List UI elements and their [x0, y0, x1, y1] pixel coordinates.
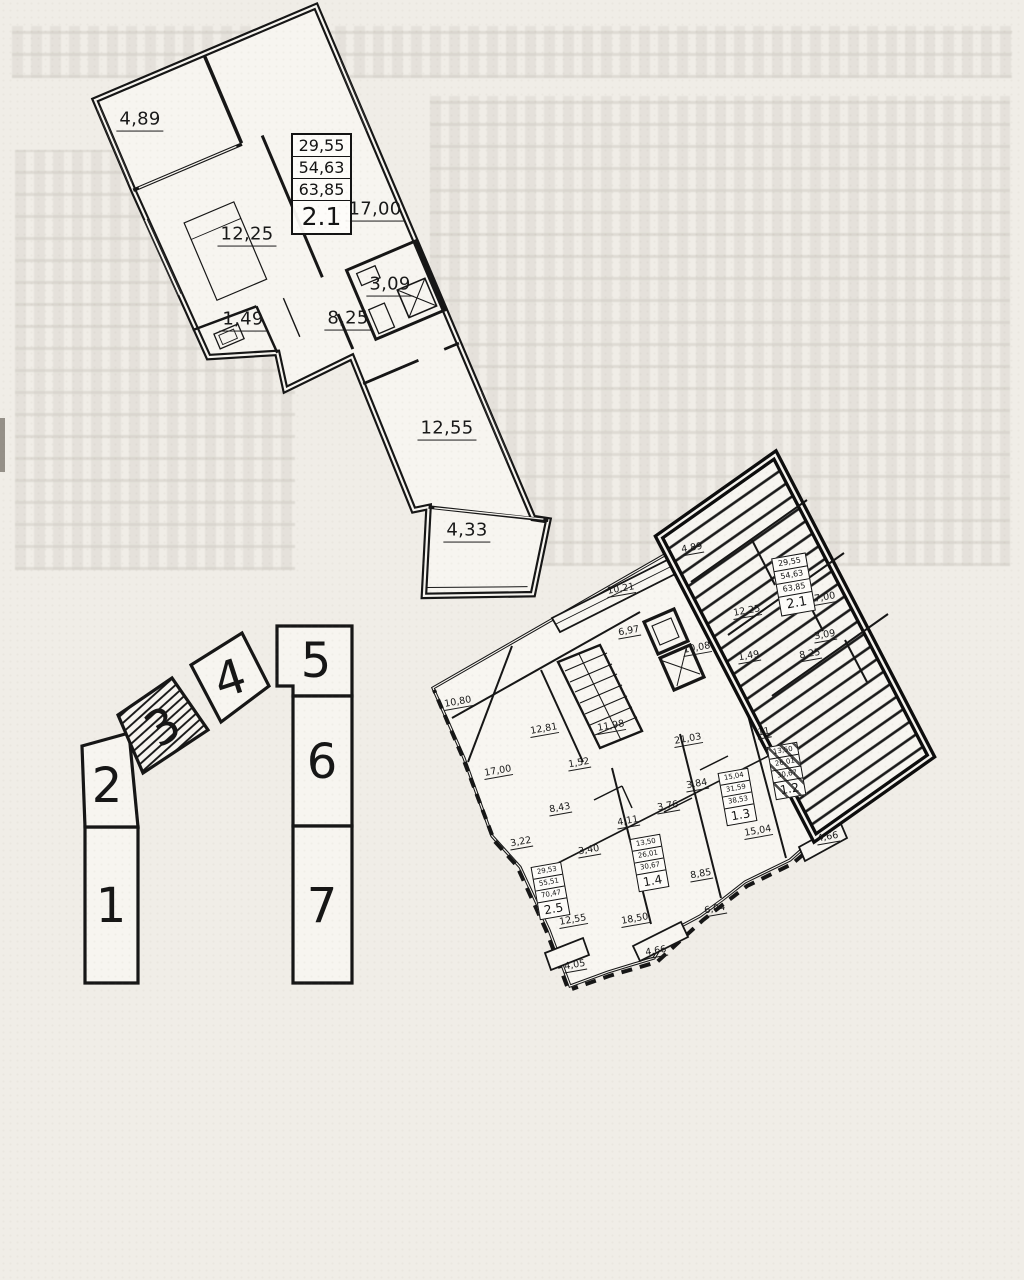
section-number: 5	[301, 633, 332, 689]
dimension-label: 1,49	[219, 311, 266, 332]
section-number: 2	[92, 758, 123, 814]
area-value: 29,55	[293, 135, 350, 157]
dimension-label: 4,33	[443, 522, 490, 543]
dimension-label: 12,55	[417, 420, 476, 441]
section-number: 6	[307, 734, 338, 790]
area-value: 54,63	[293, 157, 350, 179]
dimension-label: 8,25	[324, 310, 371, 331]
apartment-plan	[94, 1, 573, 677]
dimension-label: 4,89	[116, 111, 163, 132]
apartment-outline	[95, 1, 572, 676]
scanned-page: 4,89 12,25 17,00 3,09 1,49 8,25 12,55 4,…	[0, 0, 1024, 1280]
plan-linework	[0, 0, 1024, 1280]
dimension-label: 12,25	[217, 226, 276, 247]
section-number: 1	[96, 878, 127, 934]
unit-info-table: 29,55 54,63 63,85 2.1	[291, 133, 352, 235]
dimension-label: 3,09	[366, 276, 413, 297]
unit-number: 2.1	[293, 201, 350, 233]
section-number: 7	[307, 878, 338, 934]
dimension-label: 17,00	[345, 201, 404, 222]
area-value: 63,85	[293, 179, 350, 201]
